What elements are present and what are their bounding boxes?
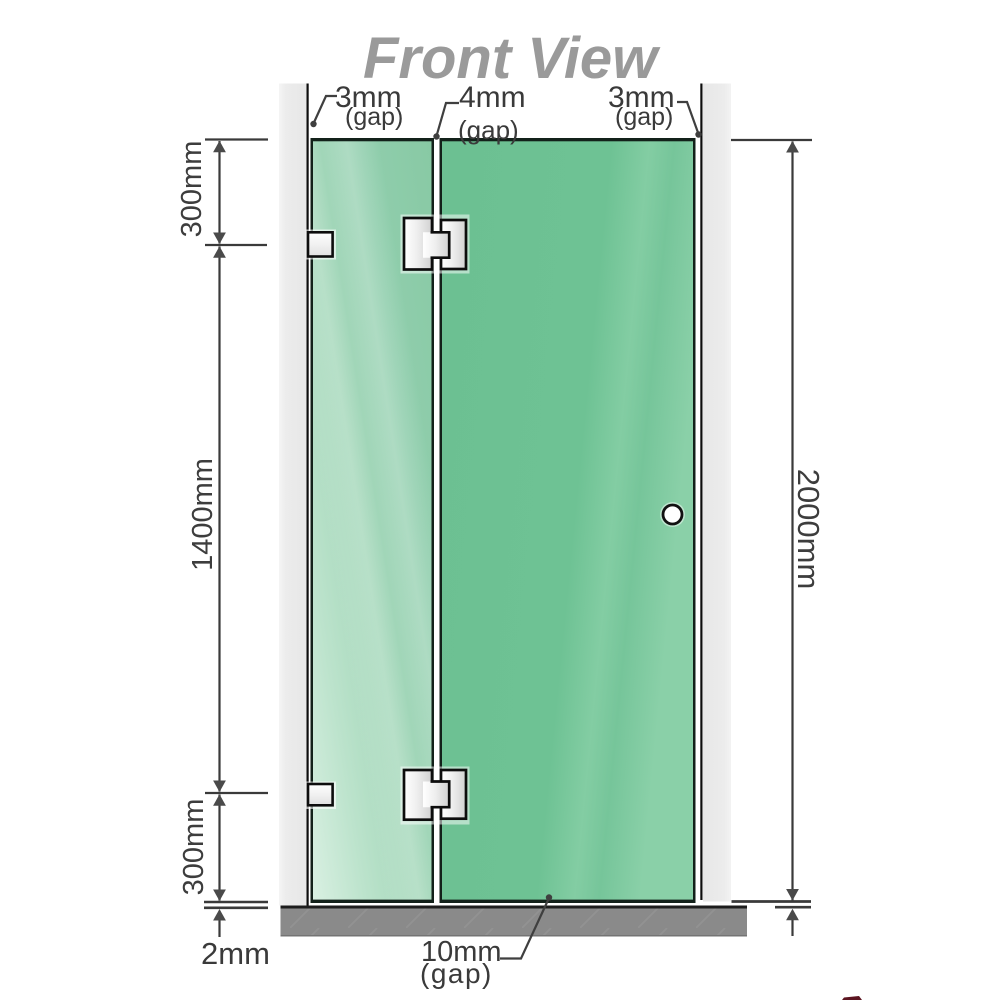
svg-text:1400mm: 1400mm bbox=[187, 458, 219, 571]
svg-text:(gap): (gap) bbox=[345, 103, 403, 131]
svg-text:2000mm: 2000mm bbox=[791, 469, 826, 590]
svg-text:300mm: 300mm bbox=[176, 141, 208, 238]
svg-text:(gap): (gap) bbox=[458, 115, 519, 145]
svg-text:4mm: 4mm bbox=[459, 81, 526, 114]
svg-text:2mm: 2mm bbox=[201, 936, 270, 971]
svg-text:300mm: 300mm bbox=[178, 799, 210, 896]
svg-text:(gap): (gap) bbox=[615, 103, 673, 131]
svg-text:(gap): (gap) bbox=[420, 958, 493, 989]
